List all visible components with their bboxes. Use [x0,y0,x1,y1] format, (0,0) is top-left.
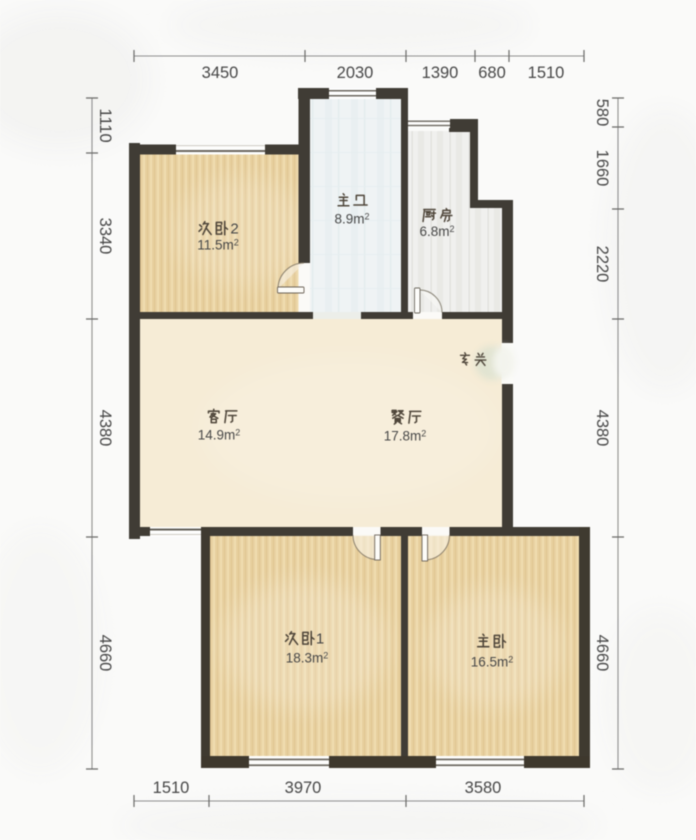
svg-text:14.9m2: 14.9m2 [198,428,241,443]
svg-text:580: 580 [593,99,611,127]
svg-text:17.8m2: 17.8m2 [384,429,427,444]
svg-text:3340: 3340 [96,218,114,255]
svg-text:1110: 1110 [96,108,114,142]
svg-text:1390: 1390 [422,64,459,82]
svg-text:2220: 2220 [593,246,611,283]
svg-text:18.3m2: 18.3m2 [286,651,329,666]
svg-text:4380: 4380 [593,410,611,447]
svg-text:4660: 4660 [96,635,114,672]
svg-text:1: 1 [316,631,324,648]
svg-text:2: 2 [230,221,238,238]
svg-text:1510: 1510 [153,779,190,797]
svg-text:1660: 1660 [593,150,611,187]
svg-text:6.8m2: 6.8m2 [419,224,454,239]
svg-text:16.5m2: 16.5m2 [471,655,514,670]
svg-text:4660: 4660 [593,635,611,672]
svg-text:4380: 4380 [96,410,114,447]
svg-text:2030: 2030 [337,64,374,82]
svg-text:3970: 3970 [285,779,322,797]
svg-text:1510: 1510 [528,64,565,82]
svg-text:8.9m2: 8.9m2 [334,212,369,227]
svg-text:3580: 3580 [465,779,502,797]
svg-text:680: 680 [478,64,506,82]
svg-text:11.5m2: 11.5m2 [197,238,239,253]
svg-text:3450: 3450 [202,64,239,82]
